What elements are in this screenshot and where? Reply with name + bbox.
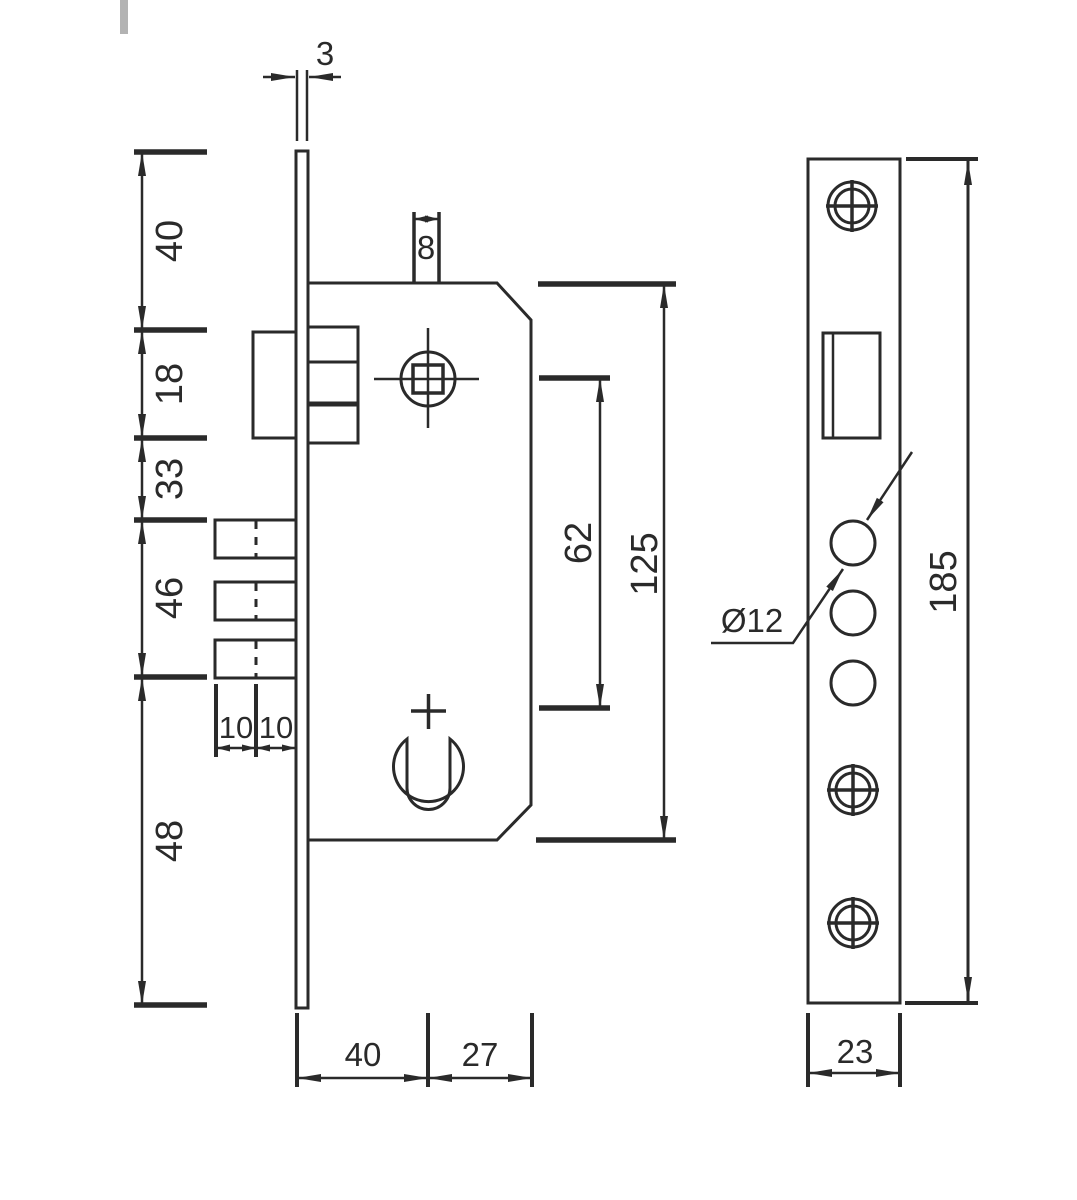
faceplate-front (808, 159, 900, 1003)
leader-line-upper (867, 452, 912, 520)
keyhole-outline (393, 739, 463, 809)
dim-label-faceplate-thickness: 3 (316, 35, 334, 72)
latch-opening (823, 333, 880, 438)
dim-label-throw-right: 10 (259, 710, 293, 745)
corner-scan-mark (120, 0, 128, 34)
dim-label-62: 62 (558, 522, 600, 564)
bolt-hole (831, 661, 875, 705)
dim-label-46: 46 (149, 577, 191, 619)
dim-label-125: 125 (624, 532, 666, 595)
deadbolt-pins (215, 520, 296, 678)
latch-bolt (253, 327, 358, 443)
dim-label-spindle-8: 8 (417, 229, 435, 266)
screw-hole-bottom (827, 897, 879, 949)
screw-hole-middle (827, 764, 879, 816)
spindle-follower (374, 328, 479, 428)
screw-hole-top (826, 180, 878, 232)
mortise-lock-technical-drawing: 3 40 18 33 46 48 8 62 125 10 10 40 27 Ø1… (0, 0, 1077, 1200)
bolt-hole (831, 591, 875, 635)
latch-cutout (823, 333, 880, 438)
bolt-hole (831, 521, 875, 565)
dim-label-33: 33 (149, 458, 191, 500)
cylinder-keyhole (393, 694, 463, 809)
side-view (134, 70, 676, 1087)
dim-label-48: 48 (149, 820, 191, 862)
dim-label-27: 27 (462, 1036, 499, 1073)
technical-drawing-page: 3 40 18 33 46 48 8 62 125 10 10 40 27 Ø1… (0, 0, 1077, 1200)
dim-label-40: 40 (149, 220, 191, 262)
dim-faceplate-thickness (263, 70, 341, 141)
dim-label-18: 18 (149, 363, 191, 405)
dim-label-hole-diameter: Ø12 (721, 602, 783, 639)
latch-bolt-head (253, 332, 296, 438)
dim-label-throw-left: 10 (219, 710, 253, 745)
dim-label-185: 185 (923, 550, 965, 613)
dim-label-23: 23 (837, 1033, 874, 1070)
dim-label-backset-40: 40 (345, 1036, 382, 1073)
latch-bolt-body (308, 327, 358, 443)
faceplate-side-profile (296, 151, 308, 1008)
deadbolt-holes (831, 521, 875, 705)
